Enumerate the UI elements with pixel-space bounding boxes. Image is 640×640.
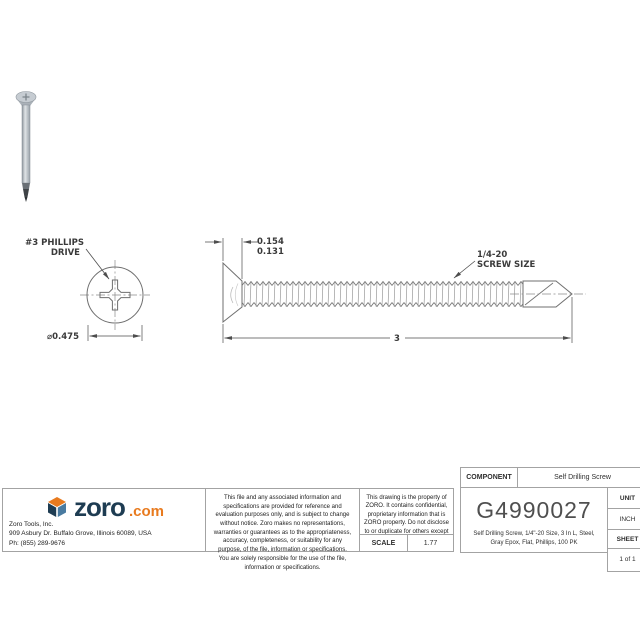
disclaimer-text: This file and any associated information… bbox=[206, 489, 359, 577]
screw-head-side bbox=[223, 263, 242, 322]
logo-brand-text: zoro bbox=[74, 494, 125, 520]
component-label: COMPONENT bbox=[466, 474, 512, 481]
drive-label-line2: DRIVE bbox=[51, 248, 80, 258]
screw-size-line2: SCREW SIZE bbox=[477, 260, 535, 270]
threaded-shank bbox=[242, 281, 523, 307]
component-label-cell: COMPONENT bbox=[461, 468, 518, 487]
drive-label-line1: #3 PHILLIPS bbox=[25, 238, 84, 248]
part-box: G4990027 Self Drilling Screw, 1/4"-20 Si… bbox=[460, 487, 608, 553]
head-dim-min-text: 0.131 bbox=[257, 247, 284, 257]
head-view: #3 PHILLIPS DRIVE ⌀0.475 bbox=[25, 238, 150, 342]
sheet-value: 1 of 1 bbox=[619, 556, 635, 563]
part-number: G4990027 bbox=[461, 497, 607, 524]
property-notice-box: This drawing is the property of ZORO. It… bbox=[359, 488, 454, 535]
drill-point-flute bbox=[525, 283, 553, 305]
disclaimer-box: This file and any associated information… bbox=[205, 488, 360, 552]
company-street: 909 Asbury Dr. Buffalo Grove, Illinois 6… bbox=[9, 529, 152, 538]
screw-product-photo bbox=[10, 84, 46, 204]
scale-row: SCALE 1.77 bbox=[359, 534, 454, 552]
leader-screw-size bbox=[454, 261, 475, 278]
unit-value: INCH bbox=[620, 516, 636, 523]
screw-photo-graphic bbox=[16, 92, 36, 203]
phillips-cross bbox=[100, 280, 130, 310]
zoro-cube-icon bbox=[44, 494, 70, 520]
sheet-label-cell: SHEET bbox=[608, 530, 640, 549]
scale-value: 1.77 bbox=[424, 540, 438, 547]
head-dim-max-text: 0.154 bbox=[257, 237, 284, 247]
screw-head-circle bbox=[87, 267, 143, 323]
leader-drive-label bbox=[86, 249, 109, 279]
sheet-label: SHEET bbox=[617, 536, 639, 543]
logo-tld-text: .com bbox=[129, 504, 164, 519]
head-detail-line bbox=[235, 284, 238, 307]
component-value: Self Drilling Screw bbox=[554, 474, 611, 481]
part-description: Self Drilling Screw, 1/4"-20 Size, 3 In … bbox=[469, 530, 599, 548]
zoro-logo: zoro.com bbox=[3, 494, 205, 520]
sheet-value-cell: 1 of 1 bbox=[608, 549, 640, 569]
company-name: Zoro Tools, Inc. bbox=[9, 520, 152, 529]
length-dim-text: 3 bbox=[394, 334, 400, 344]
unit-label: UNIT bbox=[620, 495, 635, 502]
company-address-block: Zoro Tools, Inc. 909 Asbury Dr. Buffalo … bbox=[9, 520, 152, 548]
company-box: zoro.com Zoro Tools, Inc. 909 Asbury Dr.… bbox=[2, 488, 206, 552]
unit-value-cell: INCH bbox=[608, 509, 640, 530]
head-detail-line bbox=[231, 287, 233, 303]
drill-point bbox=[523, 281, 572, 307]
screw-size-line1: 1/4-20 bbox=[477, 250, 507, 260]
company-phone: Ph: (855) 289-9676 bbox=[9, 539, 152, 548]
side-view: 0.154 0.131 1/4-20 SCREW SIZE 3 bbox=[205, 237, 586, 344]
cad-sheet-page: { "drawing": { "head_view": { "drive_lab… bbox=[0, 0, 640, 640]
unit-label-cell: UNIT bbox=[608, 488, 640, 509]
component-value-cell: Self Drilling Screw bbox=[518, 468, 640, 487]
scale-label: SCALE bbox=[372, 540, 396, 547]
scale-label-cell: SCALE bbox=[360, 535, 408, 551]
diameter-dim-text: ⌀0.475 bbox=[47, 332, 79, 342]
component-row: COMPONENT Self Drilling Screw bbox=[460, 467, 640, 488]
scale-value-cell: 1.77 bbox=[408, 535, 453, 551]
unit-sheet-column: UNIT INCH SHEET 1 of 1 bbox=[607, 487, 640, 572]
